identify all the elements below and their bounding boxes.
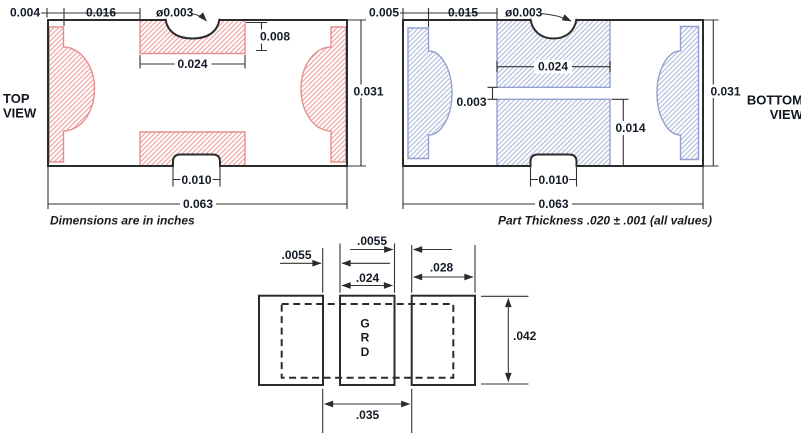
dim-body-height: 0.031 [710, 84, 740, 98]
land-pattern: .0055 .0055 .024 .028 .042 .035 G R D [259, 234, 537, 433]
dim-body-width: 0.063 [183, 197, 213, 211]
marking-letter-g: G [360, 317, 369, 331]
marking-letter-d: D [361, 345, 370, 359]
dim-gap-left: .0055 [281, 248, 311, 262]
bottom-view-bottom-notch [531, 155, 577, 168]
dim-lower-pad-height: 0.014 [615, 121, 645, 135]
dim-center-pad-width: .024 [356, 271, 380, 285]
top-view-right-terminal [301, 27, 346, 162]
top-view-label-line2: VIEW [3, 106, 37, 121]
land-right-pad [412, 296, 475, 385]
dim-hole-dia: ø0.003 [505, 6, 543, 20]
bottom-view-label-line2: VIEW [770, 107, 801, 122]
dim-gap-right: .0055 [357, 234, 387, 248]
top-view-bottom-notch [173, 155, 220, 168]
dim-band-width: 0.005 [369, 6, 399, 20]
dim-inner-span: .035 [356, 408, 380, 422]
package-dimension-diagram: 0.004 0.016 ø0.003 0.008 0.024 0.031 0.0… [0, 0, 801, 441]
dim-pad-width: 0.024 [177, 57, 207, 71]
marking-letter-r: R [361, 331, 370, 345]
dim-band-to-pad: 0.015 [448, 6, 478, 20]
dim-pad-height: .042 [513, 329, 537, 343]
thickness-note: Part Thickness .020 ± .001 (all values) [498, 214, 712, 228]
top-view: 0.004 0.016 ø0.003 0.008 0.024 0.031 0.0… [3, 6, 385, 228]
top-view-label-line1: TOP [3, 91, 30, 106]
units-note: Dimensions are in inches [50, 214, 195, 228]
dim-body-width: 0.063 [538, 197, 568, 211]
dim-pad-height: 0.008 [260, 30, 290, 44]
dim-outer-pad-width: .028 [430, 261, 454, 275]
bottom-view-label-line1: BOTTOM [747, 93, 801, 108]
dim-gap: 0.003 [456, 95, 486, 109]
land-left-pad [259, 296, 323, 385]
dim-band-to-pad: 0.016 [86, 6, 116, 20]
dim-body-height: 0.031 [353, 84, 383, 98]
dim-hole-dia: ø0.003 [156, 6, 194, 20]
dim-band-width: 0.004 [10, 6, 40, 20]
diagram-svg: 0.004 0.016 ø0.003 0.008 0.024 0.031 0.0… [0, 0, 801, 441]
dim-pad-width: 0.024 [538, 59, 568, 73]
bottom-view-right-terminal [657, 27, 699, 160]
bottom-view: 0.005 0.015 ø0.003 0.024 0.003 0.014 0.0… [369, 6, 801, 228]
dim-notch-width: 0.010 [181, 173, 211, 187]
bottom-view-left-terminal [408, 28, 452, 159]
top-view-left-terminal [49, 27, 94, 162]
dim-notch-width: 0.010 [538, 173, 568, 187]
